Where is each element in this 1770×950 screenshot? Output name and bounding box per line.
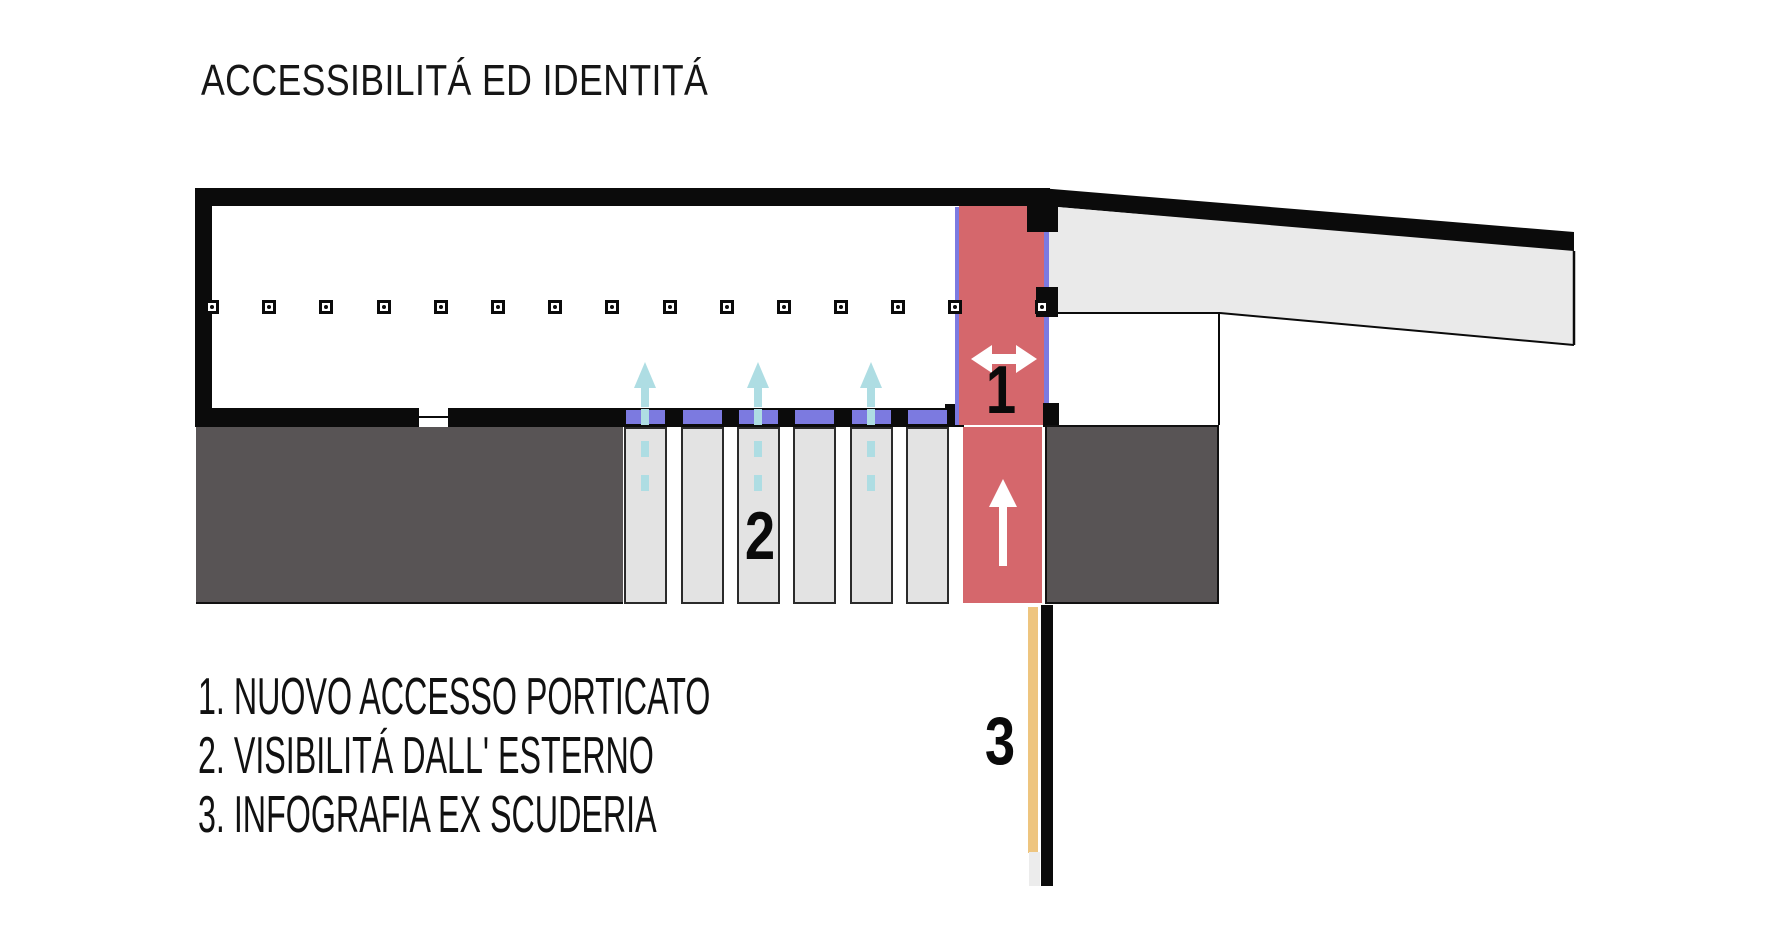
legend-item-1: 1. NUOVO ACCESSO PORTICATO bbox=[198, 668, 710, 727]
yellow-line-shadow bbox=[1029, 852, 1040, 886]
marker-1-access: 1 bbox=[980, 356, 1022, 424]
diagram-canvas: 1 2 3 ACCESSIBILITÁ ED IDENTITÁ 1. NUOVO… bbox=[0, 0, 1770, 950]
site-edge-black-line bbox=[1041, 605, 1053, 886]
legend: 1. NUOVO ACCESSO PORTICATO 2. VISIBILITÁ… bbox=[198, 668, 1024, 845]
legend-item-2: 2. VISIBILITÁ DALL' ESTERNO bbox=[198, 727, 710, 786]
page-title: ACCESSIBILITÁ ED IDENTITÁ bbox=[201, 56, 708, 106]
up-arrow-icon bbox=[989, 479, 1017, 566]
infographic-yellow-line bbox=[1028, 607, 1038, 853]
legend-item-3: 3. INFOGRAFIA EX SCUDERIA bbox=[198, 786, 710, 845]
marker-2-visibility: 2 bbox=[739, 502, 781, 570]
